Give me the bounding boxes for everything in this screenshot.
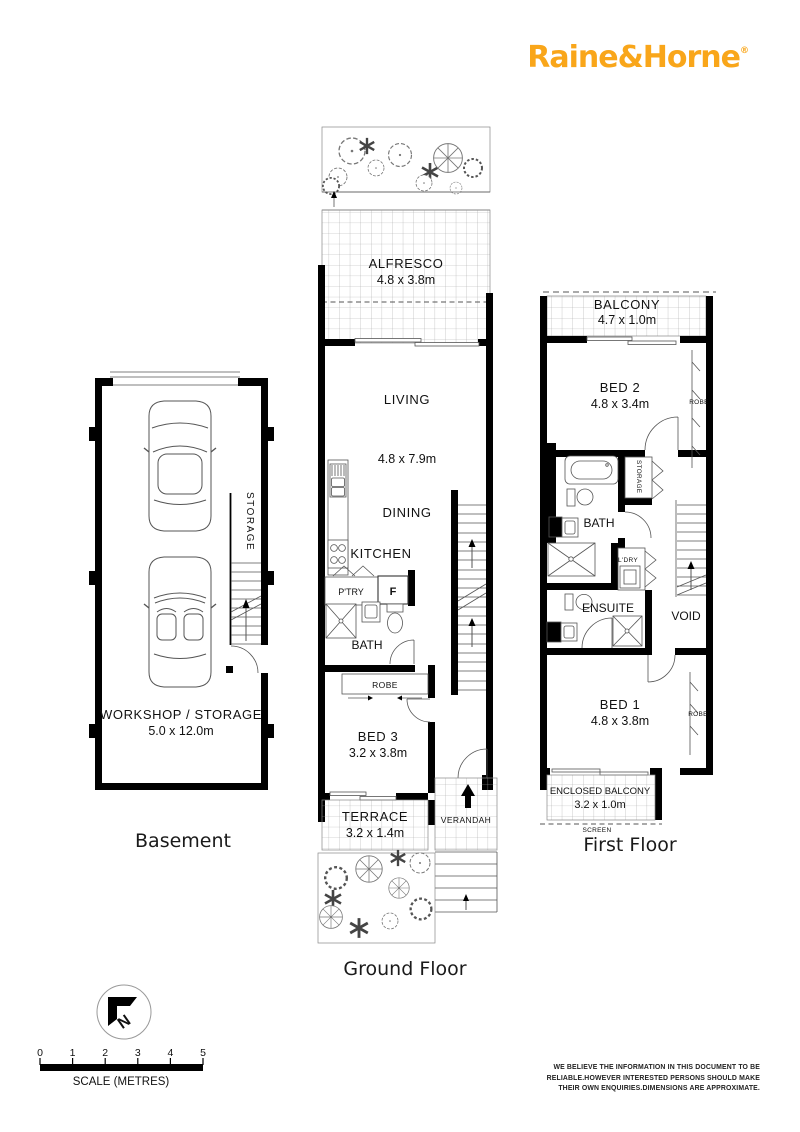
disclaimer-line3: THEIR OWN ENQUIRIES.DIMENSIONS ARE APPRO… <box>510 1084 760 1095</box>
compass-letter: N <box>115 1012 134 1033</box>
ground-stairs-arrow2 <box>469 618 476 626</box>
garage-door <box>110 372 240 385</box>
bed3-label: BED 3 <box>358 729 399 744</box>
storage-closet <box>625 457 663 499</box>
ground-bath-fixtures <box>326 602 403 638</box>
bed1-dims: 4.8 x 3.8m <box>591 714 649 728</box>
basement-door-arc <box>231 646 258 673</box>
ensuite-door-arc <box>582 618 612 648</box>
terrace-label: TERRACE <box>342 809 408 824</box>
terrace-dims: 3.2 x 1.4m <box>346 826 404 840</box>
rear-garden-trees <box>323 138 482 194</box>
balcony-dims: 4.7 x 1.0m <box>598 313 656 327</box>
first-floor-title: First Floor <box>520 834 740 856</box>
dining-label: DINING <box>382 505 431 520</box>
ground-bath-door-arc <box>390 640 414 664</box>
stairs-up-arrow <box>243 599 250 608</box>
robe-arrow-left <box>397 696 402 701</box>
balcony-label: BALCONY <box>594 297 660 312</box>
scale-label: SCALE (METRES) <box>73 1076 170 1088</box>
bed1-label: BED 1 <box>600 697 641 712</box>
floorplan-page: Raine&Horne® <box>0 0 800 1132</box>
scale-tick-5: 5 <box>200 1047 206 1059</box>
verandah-door-arc <box>458 749 487 778</box>
entry-arrow-stem <box>465 796 471 808</box>
disclaimer-line1: WE BELIEVE THE INFORMATION IN THIS DOCUM… <box>510 1063 760 1074</box>
laundry-closet <box>618 548 656 590</box>
bed3-door-arc <box>407 699 430 722</box>
first-bath-label: BATH <box>583 516 614 530</box>
enclosed-balcony-dims: 3.2 x 1.0m <box>574 799 625 811</box>
terrace-tiles <box>322 800 428 850</box>
alfresco-dims: 4.8 x 3.8m <box>377 273 435 287</box>
bed2-label: BED 2 <box>600 380 641 395</box>
disclaimer-line2: RELIABLE.HOWEVER INTERESTED PERSONS SHOU… <box>510 1074 760 1085</box>
basement-plan: STORAGE WORKSHOP / STORAGE 5.0 x 12.0m <box>88 368 284 800</box>
bed2-robe-label: ROBE <box>689 399 709 406</box>
garden-path-band <box>322 192 490 210</box>
first-bath-door-arc <box>625 512 651 538</box>
ground-bath-label: BATH <box>351 638 382 652</box>
scale-tick-1: 1 <box>70 1047 76 1059</box>
ground-stairs-arrow1 <box>469 539 476 547</box>
logo-text: Raine&Horne <box>527 40 740 75</box>
storage-label: STORAGE <box>244 492 255 551</box>
basement-title: Basement <box>73 830 293 852</box>
first-floor-plan: BALCONY 4.7 x 1.0m BED 2 4.8 x 3.4m ROBE… <box>532 280 732 858</box>
disclaimer-text: WE BELIEVE THE INFORMATION IN THIS DOCUM… <box>510 1063 760 1095</box>
bed2-dims: 4.8 x 3.4m <box>591 397 649 411</box>
laundry-label: L'DRY <box>618 557 638 564</box>
bed3-dims: 3.2 x 3.8m <box>349 746 407 760</box>
pantry-label: P'TRY <box>338 587 364 597</box>
fridge-label: F <box>390 586 397 598</box>
living-dims: 4.8 x 7.9m <box>378 452 436 466</box>
verandah-label: VERANDAH <box>441 815 491 825</box>
ground-stairs <box>458 505 486 690</box>
registered-mark: ® <box>740 46 748 56</box>
bed2-door-arc <box>645 417 678 450</box>
living-label: LIVING <box>384 392 430 407</box>
compass-and-scale: N 0 1 2 3 4 5 SCALE (METRES) <box>28 975 228 1095</box>
north-compass-icon: N <box>97 985 151 1039</box>
ground-floor-plan: ALFRESCO 4.8 x 3.8m <box>312 118 512 980</box>
kitchen-bench <box>328 460 348 575</box>
screen-label: SCREEN <box>583 827 612 834</box>
convertible-car-icon <box>144 557 216 687</box>
steps-arrow <box>463 894 469 901</box>
void-label: VOID <box>671 609 701 623</box>
ground-floor-title: Ground Floor <box>295 958 515 980</box>
enclosed-balcony-tiles <box>547 775 655 820</box>
car-icon <box>144 401 216 531</box>
bathtub <box>565 456 618 484</box>
scale-tick-3: 3 <box>135 1047 141 1059</box>
bed1-robe-label: ROBE <box>688 711 708 718</box>
alfresco-label: ALFRESCO <box>369 256 444 271</box>
first-stairs <box>676 500 706 597</box>
raine-horne-logo: Raine&Horne® <box>527 40 748 75</box>
scale-bar: 0 1 2 3 4 5 SCALE (METRES) <box>37 1047 206 1088</box>
front-garden-trees <box>320 850 432 938</box>
first-storage-label: STORAGE <box>635 460 642 493</box>
bed1-door-arc <box>648 655 675 682</box>
ground-robe-label: ROBE <box>372 680 398 690</box>
workshop-dims: 5.0 x 12.0m <box>148 724 213 738</box>
ensuite-label: ENSUITE <box>582 601 634 615</box>
workshop-label: WORKSHOP / STORAGE <box>100 707 262 722</box>
first-stairs-arrow <box>688 561 695 569</box>
kitchen-label: KITCHEN <box>350 546 411 561</box>
scale-tick-4: 4 <box>167 1047 173 1059</box>
enclosed-balcony-label: ENCLOSED BALCONY <box>550 786 651 797</box>
robe-arrow-right <box>368 696 373 701</box>
scale-tick-2: 2 <box>102 1047 108 1059</box>
scale-tick-0: 0 <box>37 1047 43 1059</box>
front-steps <box>435 852 497 912</box>
